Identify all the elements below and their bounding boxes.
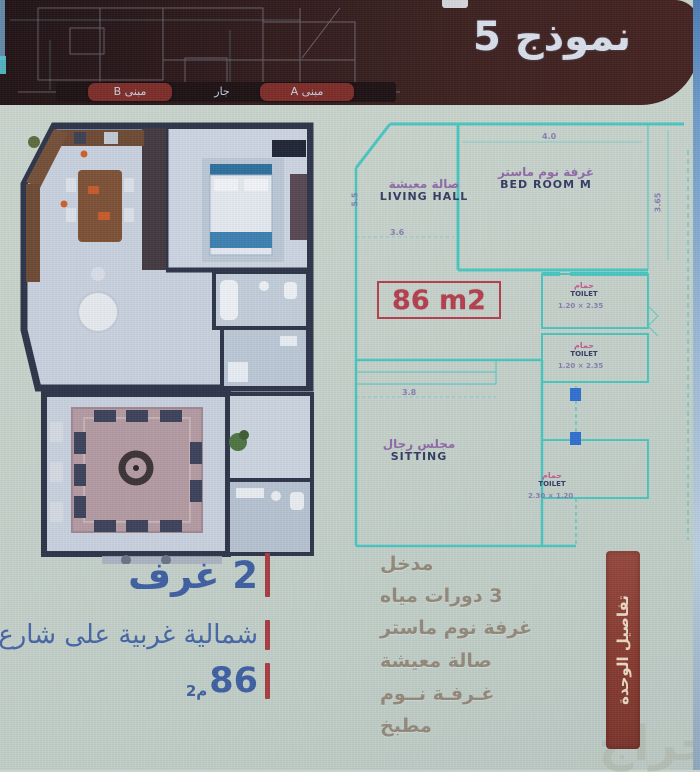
spec-area-text: 86م2	[186, 661, 258, 701]
dim-toilet1: 1.20 × 2.35	[558, 302, 603, 310]
screen-edge-left	[0, 0, 5, 60]
cutoff-label-fragment	[442, 0, 468, 8]
floorplan-2d-drawing	[346, 110, 698, 552]
spec-orientation-text: شمالية غربية على شارع	[0, 620, 258, 650]
dim-bedroom-height: 3.65	[653, 193, 662, 213]
screen-edge-left-cyan	[0, 56, 6, 74]
area-86m2-label: 86 m2	[380, 285, 498, 317]
detail-bathrooms: 3 دورات مياه	[380, 585, 600, 607]
tab-building-a[interactable]: مبنى A	[260, 83, 354, 101]
screen-edge-right	[693, 0, 700, 770]
spec-area: 86م2	[186, 661, 270, 701]
spec-rooms-text: 2 غرف	[128, 554, 258, 597]
detail-master-bedroom: غرفة نوم ماستر	[380, 617, 600, 639]
unit-details-ribbon: تفاصيل الوحدة	[606, 551, 640, 749]
detail-bedroom: غـرفـة نــوم	[380, 683, 600, 705]
spec-area-unit: م2	[186, 682, 207, 700]
header-banner: نموذج 5 مبنى B جار مبنى A	[0, 0, 699, 105]
dim-left-height: 5.5	[351, 192, 360, 206]
spec-bar	[265, 663, 270, 699]
spec-orientation: شمالية غربية على شارع	[0, 620, 270, 650]
dim-living-width: 3.6	[390, 228, 404, 237]
spec-rooms: 2 غرف	[128, 553, 270, 597]
dim-toilet2: 1.20 × 2.35	[558, 362, 603, 370]
floorplan-3d-render	[14, 112, 346, 564]
dim-toilet3: 2.30 × 1.20	[528, 492, 573, 500]
unit-details-ribbon-text: تفاصيل الوحدة	[614, 595, 632, 705]
detail-entrance: مدخل	[380, 553, 600, 575]
tab-current[interactable]: جار	[196, 83, 248, 101]
spec-area-value: 86	[209, 661, 258, 701]
spec-bar	[265, 620, 270, 650]
dim-bedroom-width: 4.0	[542, 132, 556, 141]
model-title: نموذج 5	[452, 14, 652, 70]
detail-living-hall: صالة معيشة	[380, 650, 600, 672]
spec-bar	[265, 553, 270, 597]
tab-building-b[interactable]: مبنى B	[88, 83, 172, 101]
detail-kitchen: مطبخ	[380, 715, 600, 737]
dim-mid-width: 3.8	[402, 388, 416, 397]
